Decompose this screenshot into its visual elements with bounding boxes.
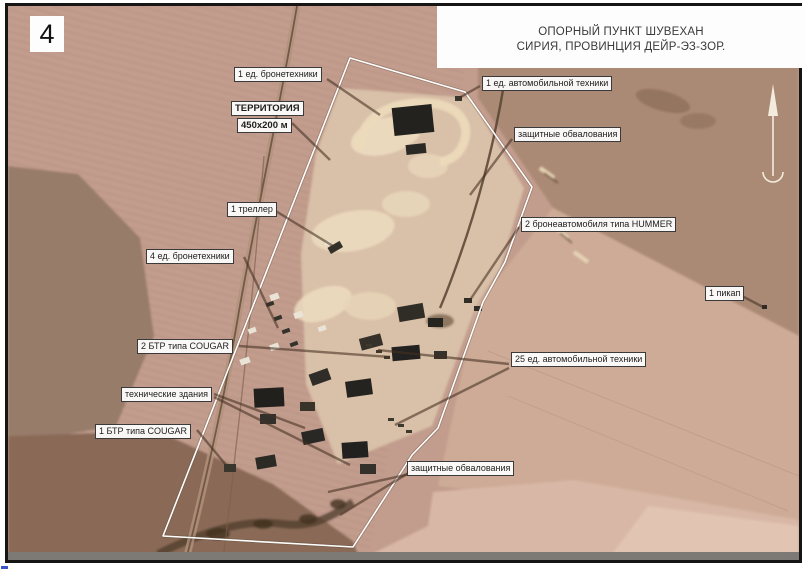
callout-auto-1: 1 ед. автомобильной техники <box>482 76 612 91</box>
territory-title: ТЕРРИТОРИЯ <box>231 101 304 116</box>
title-line-1: ОПОРНЫЙ ПУНКТ ШУВЕХАН <box>437 25 805 40</box>
page-number-marker: 4 <box>30 16 64 52</box>
callout-berms-top: защитные обвалования <box>514 127 621 142</box>
photo-frame: 4 ОПОРНЫЙ ПУНКТ ШУВЕХАН СИРИЯ, ПРОВИНЦИЯ… <box>5 3 802 563</box>
reconnaissance-slide: 4 ОПОРНЫЙ ПУНКТ ШУВЕХАН СИРИЯ, ПРОВИНЦИЯ… <box>0 0 812 572</box>
callout-pickup: 1 пикап <box>705 286 744 301</box>
callout-cougar-1: 1 БТР типа COUGAR <box>95 424 191 439</box>
callout-cougar-2: 2 БТР типа COUGAR <box>137 339 233 354</box>
title-line-2: СИРИЯ, ПРОВИНЦИЯ ДЕЙР-ЭЗ-ЗОР. <box>437 40 805 55</box>
callout-auto-25: 25 ед. автомобильной техники <box>511 352 646 367</box>
callout-trailer: 1 треллер <box>227 202 277 217</box>
satellite-imagery <box>8 6 799 560</box>
territory-size: 450x200 м <box>237 118 292 133</box>
photo-bottom-seam <box>8 552 799 560</box>
callout-armor-1: 1 ед. бронетехники <box>234 67 322 82</box>
scan-artifact-mark <box>1 566 8 569</box>
callout-armor-4: 4 ед. бронетехники <box>146 249 234 264</box>
callout-tech-buildings: технические здания <box>121 387 212 402</box>
title-box: ОПОРНЫЙ ПУНКТ ШУВЕХАН СИРИЯ, ПРОВИНЦИЯ Д… <box>437 6 805 68</box>
callout-hummer: 2 бронеавтомобиля типа HUMMER <box>521 217 676 232</box>
callout-berms-bottom: защитные обвалования <box>407 461 514 476</box>
